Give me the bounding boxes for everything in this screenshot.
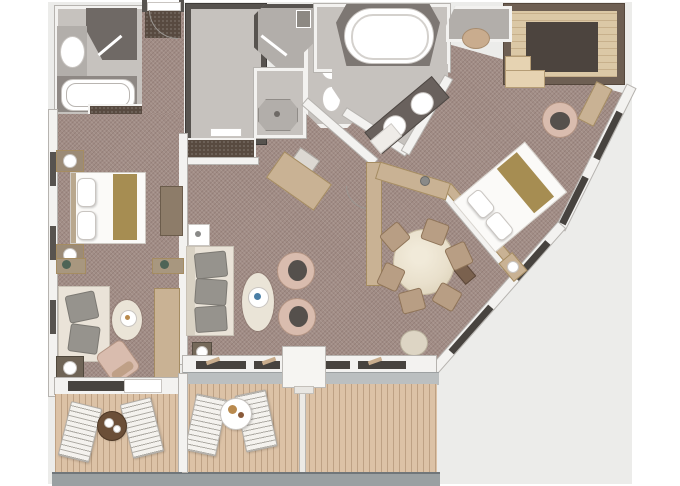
- guest-tv-cabinet: [160, 186, 183, 236]
- dining-pouf: [401, 331, 427, 355]
- main-balcony-railing: [180, 472, 440, 486]
- console-knob-icon: [420, 176, 430, 186]
- nightstand-lamp-icon: [507, 261, 519, 273]
- guest-balcony-door-icon: [124, 379, 162, 393]
- balcony-deck-divider: [300, 384, 305, 472]
- table-decor-icon: [125, 315, 130, 320]
- nightstand-lamp-icon: [63, 154, 77, 168]
- master-bathtub-basin: [351, 14, 429, 60]
- plant-console: [56, 258, 86, 274]
- guest-washbasin-icon: [60, 36, 85, 68]
- living-window-icon: [196, 361, 246, 369]
- guest-bed-headboard: [71, 173, 76, 243]
- bed-pillow: [77, 211, 96, 240]
- balcony-door-step: [294, 386, 314, 394]
- balcony-divider-wall: [179, 374, 187, 472]
- floor-plan: [0, 0, 680, 486]
- minibar-handle-icon: [195, 231, 201, 237]
- living-window-icon: [326, 361, 350, 369]
- sofa-cushion: [67, 323, 101, 355]
- sofa-cushion: [194, 250, 229, 279]
- balcony-table: [220, 398, 252, 430]
- guest-bathtub-basin: [66, 83, 130, 107]
- walk-in-closet-door-icon: [210, 128, 242, 137]
- plant-icon: [62, 260, 71, 269]
- living-top-wall: [178, 158, 258, 164]
- living-sofa: [186, 246, 234, 336]
- dressing-wardrobe-panel: [526, 22, 598, 72]
- shower-room-bench: [296, 10, 311, 28]
- side-table-lamp-icon: [63, 361, 77, 375]
- plant-icon: [160, 260, 169, 269]
- balcony-table-decor-icon: [238, 412, 244, 418]
- shower-drain-icon: [274, 111, 280, 117]
- dressing-bench: [505, 70, 545, 88]
- guest-bed: [70, 172, 146, 244]
- bed-pillow: [77, 178, 96, 207]
- balcony-table-decor-icon: [113, 425, 121, 433]
- bed-gold-runner: [113, 174, 137, 240]
- living-closet-band: [178, 140, 254, 159]
- coffee-table-decor-icon: [254, 293, 261, 300]
- living-window-icon: [358, 361, 406, 369]
- bedroom-armchair-seat: [550, 112, 570, 130]
- tub-chair-seat: [288, 260, 307, 281]
- sofa-cushion: [194, 305, 228, 333]
- bedroom-ottoman: [462, 28, 490, 49]
- guest-window-icon: [50, 300, 56, 334]
- divider-console-vertical: [366, 162, 382, 286]
- balcony-table-decor-icon: [228, 405, 237, 414]
- sofa-cushion: [64, 290, 99, 324]
- sofa-cushion: [194, 278, 228, 306]
- guest-balcony-glass: [68, 381, 124, 391]
- guest-long-counter: [154, 288, 180, 382]
- living-balcony-door: [282, 346, 326, 388]
- guest-balcony-railing: [52, 472, 182, 486]
- tub-chair-seat: [289, 306, 308, 327]
